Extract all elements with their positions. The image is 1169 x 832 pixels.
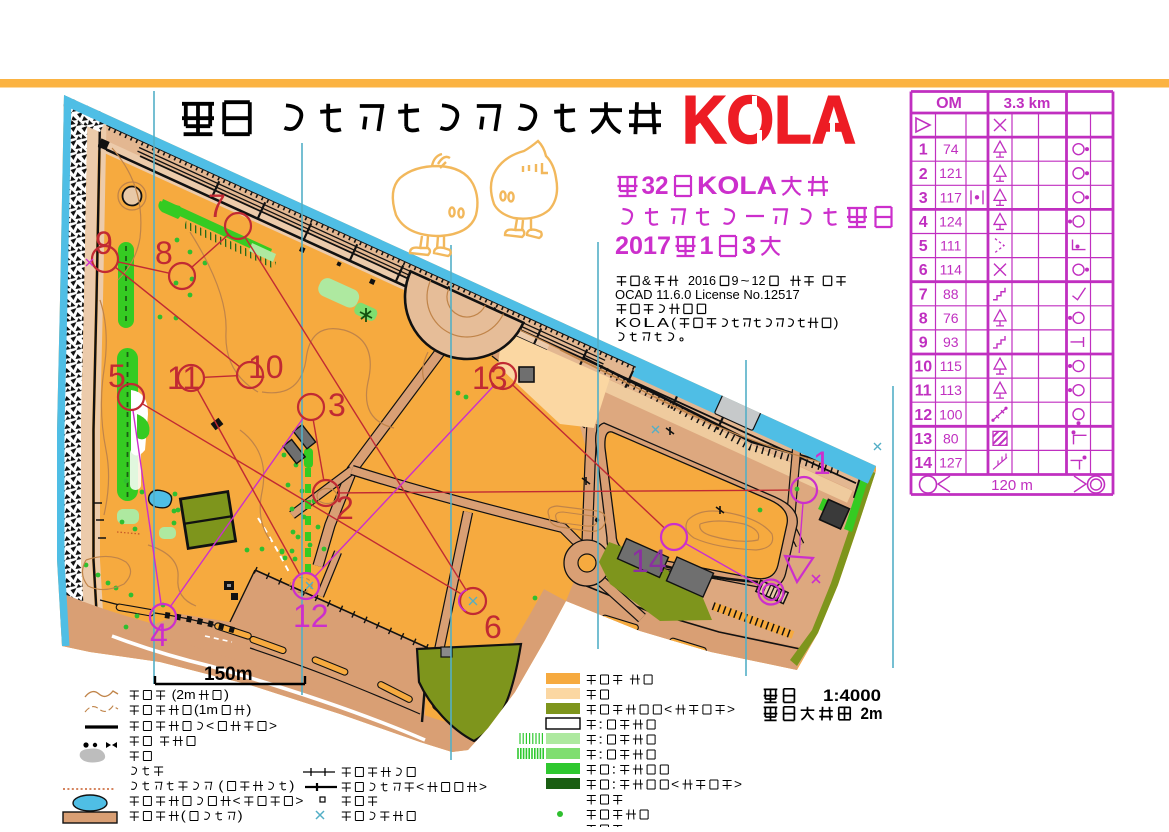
svg-text:2016: 2016 bbox=[688, 273, 716, 288]
svg-text:11: 11 bbox=[915, 383, 932, 400]
svg-text:): ) bbox=[289, 779, 294, 793]
svg-text:120 m: 120 m bbox=[991, 477, 1033, 494]
svg-text:150m: 150m bbox=[204, 664, 253, 685]
svg-text:88: 88 bbox=[943, 286, 959, 302]
svg-text:13: 13 bbox=[472, 360, 508, 396]
svg-text:1: 1 bbox=[813, 445, 831, 481]
svg-text:117: 117 bbox=[940, 189, 963, 205]
svg-text:121: 121 bbox=[939, 165, 963, 181]
svg-text:76: 76 bbox=[943, 310, 959, 326]
svg-text:L: L bbox=[643, 315, 655, 330]
svg-text:~: ~ bbox=[741, 273, 750, 288]
svg-text:2m: 2m bbox=[861, 704, 883, 723]
svg-text:>: > bbox=[727, 703, 735, 717]
svg-text:1: 1 bbox=[919, 142, 928, 159]
svg-text:127: 127 bbox=[939, 455, 963, 471]
svg-text:2: 2 bbox=[336, 490, 354, 526]
svg-text:6: 6 bbox=[919, 262, 928, 279]
svg-text:12: 12 bbox=[914, 407, 932, 424]
svg-text:9: 9 bbox=[95, 225, 113, 261]
svg-text:2: 2 bbox=[919, 166, 928, 183]
svg-text::: : bbox=[598, 733, 603, 747]
svg-text:11: 11 bbox=[167, 360, 200, 396]
svg-text:8: 8 bbox=[919, 310, 928, 327]
svg-text:3: 3 bbox=[328, 387, 346, 423]
svg-text:5: 5 bbox=[108, 358, 126, 394]
svg-text:): ) bbox=[238, 809, 243, 823]
svg-text:115: 115 bbox=[940, 358, 963, 374]
svg-text:KOLA: KOLA bbox=[682, 82, 856, 158]
svg-text:1: 1 bbox=[700, 232, 714, 260]
svg-text:<: < bbox=[233, 794, 241, 808]
svg-text:7: 7 bbox=[208, 188, 226, 224]
svg-text::: : bbox=[598, 718, 603, 732]
svg-text:10: 10 bbox=[914, 359, 932, 376]
svg-text:3: 3 bbox=[742, 232, 756, 260]
svg-text:10: 10 bbox=[248, 349, 284, 385]
svg-text:): ) bbox=[246, 703, 251, 717]
svg-text::: : bbox=[611, 778, 616, 792]
svg-text:74: 74 bbox=[943, 141, 959, 157]
svg-text:8: 8 bbox=[155, 235, 173, 271]
svg-text:114: 114 bbox=[940, 262, 963, 278]
svg-text:K: K bbox=[615, 315, 627, 330]
svg-text:3.3 km: 3.3 km bbox=[1004, 95, 1051, 112]
svg-text:O: O bbox=[629, 315, 641, 330]
svg-text:32: 32 bbox=[642, 172, 669, 200]
svg-text:): ) bbox=[834, 315, 839, 330]
svg-text:100: 100 bbox=[939, 406, 963, 422]
svg-text:12: 12 bbox=[293, 598, 329, 634]
svg-text:<: < bbox=[664, 703, 672, 717]
svg-text:>: > bbox=[295, 794, 303, 808]
svg-text:13: 13 bbox=[914, 431, 932, 448]
svg-text:>: > bbox=[269, 719, 277, 733]
svg-text:<: < bbox=[206, 719, 214, 733]
svg-text::: : bbox=[611, 763, 616, 777]
svg-text:(: ( bbox=[671, 315, 677, 330]
svg-text:3: 3 bbox=[919, 190, 928, 207]
svg-text:9: 9 bbox=[919, 334, 928, 351]
svg-text:OM: OM bbox=[936, 95, 962, 112]
svg-text:12: 12 bbox=[752, 273, 766, 288]
svg-text:80: 80 bbox=[943, 430, 959, 446]
svg-text:(1m: (1m bbox=[194, 703, 218, 717]
svg-text:(2m: (2m bbox=[172, 688, 196, 702]
svg-text:113: 113 bbox=[940, 382, 963, 398]
svg-text:>: > bbox=[479, 780, 487, 794]
svg-text:9: 9 bbox=[732, 273, 739, 288]
svg-text:111: 111 bbox=[940, 238, 961, 254]
svg-text:): ) bbox=[224, 688, 229, 702]
svg-text:KOLA: KOLA bbox=[697, 172, 777, 200]
svg-text:OCAD 11.6.0 License No.12517: OCAD 11.6.0 License No.12517 bbox=[615, 287, 800, 302]
svg-text:<: < bbox=[416, 780, 424, 794]
svg-text:&: & bbox=[642, 273, 651, 288]
svg-text:14: 14 bbox=[631, 543, 667, 579]
svg-text:6: 6 bbox=[484, 609, 502, 645]
svg-text:7: 7 bbox=[919, 286, 928, 303]
svg-text:93: 93 bbox=[943, 334, 959, 350]
svg-text:>: > bbox=[734, 778, 742, 792]
svg-text:1:4000: 1:4000 bbox=[823, 686, 881, 705]
svg-text:124: 124 bbox=[939, 214, 963, 230]
svg-text:2017: 2017 bbox=[615, 232, 671, 260]
svg-text:4: 4 bbox=[919, 214, 928, 231]
svg-text:14: 14 bbox=[914, 455, 932, 472]
svg-text:4: 4 bbox=[150, 617, 168, 653]
svg-text:<: < bbox=[671, 778, 679, 792]
svg-text:5: 5 bbox=[919, 238, 928, 255]
svg-text::: : bbox=[598, 748, 603, 762]
svg-text:A: A bbox=[657, 315, 669, 330]
